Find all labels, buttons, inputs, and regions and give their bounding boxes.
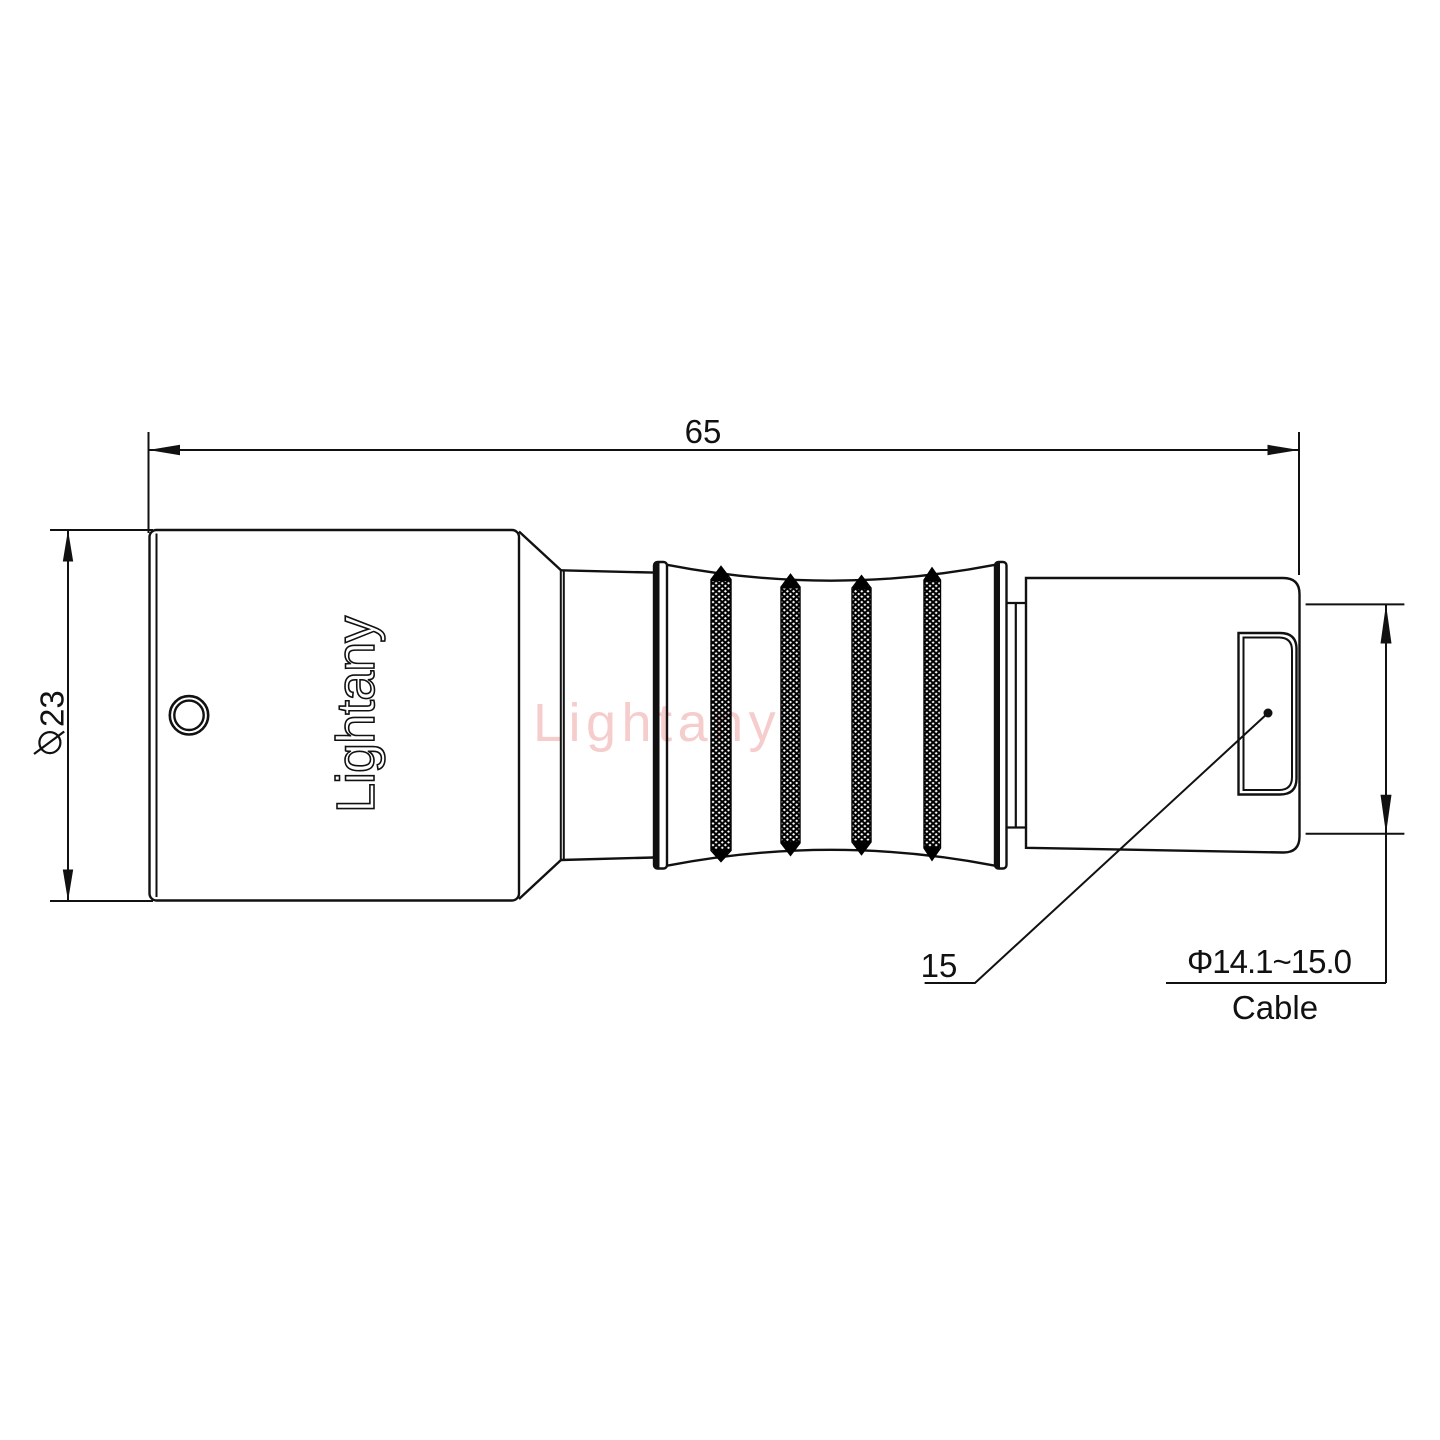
svg-text:23: 23	[34, 690, 71, 727]
svg-text:65: 65	[685, 413, 722, 450]
svg-text:15: 15	[921, 947, 958, 984]
svg-text:Φ14.1~15.0: Φ14.1~15.0	[1187, 943, 1352, 980]
svg-text:Lightany: Lightany	[326, 616, 386, 813]
svg-text:Cable: Cable	[1232, 989, 1318, 1026]
